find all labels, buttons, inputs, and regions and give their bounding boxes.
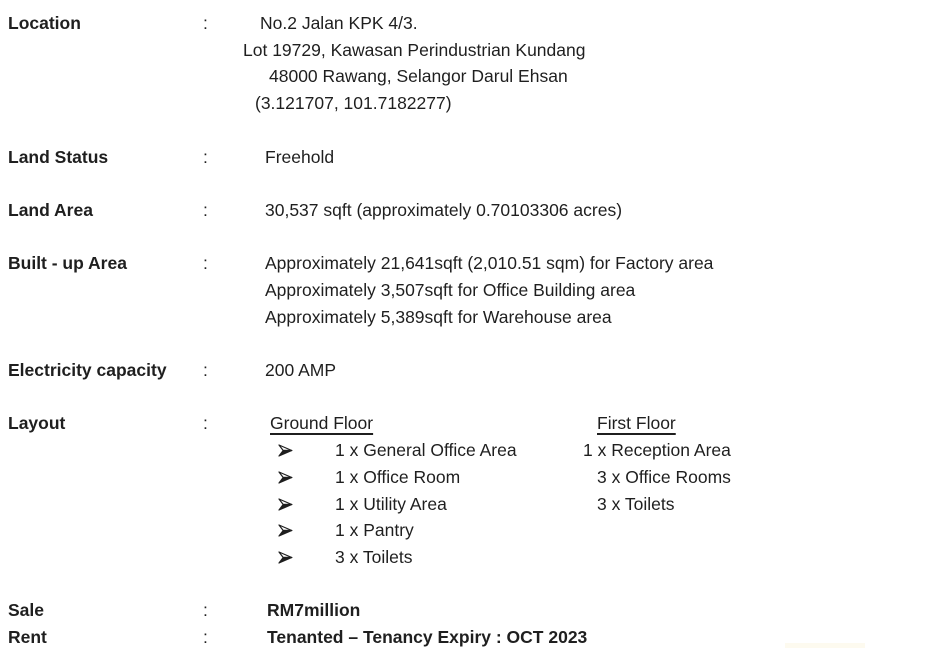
colon-separator: : (203, 624, 208, 648)
location-line: (3.121707, 101.7182277) (255, 90, 931, 117)
ground-floor-item-label: 1 x General Office Area (335, 440, 517, 460)
field-label: Rent (8, 624, 47, 648)
field-location: Location : No.2 Jalan KPK 4/3. Lot 19729… (0, 10, 931, 117)
ground-floor-item: 3 x Toilets (270, 544, 931, 571)
first-floor-column: First Floor 1 x Reception Area 3 x Offic… (583, 410, 731, 517)
field-layout: Layout : Ground Floor 1 x General Office… (0, 410, 931, 570)
location-line: No.2 Jalan KPK 4/3. (260, 10, 931, 37)
arrow-bullet-icon (278, 498, 293, 511)
location-line: Lot 19729, Kawasan Perindustrian Kundang (243, 37, 931, 64)
colon-separator: : (203, 357, 208, 384)
ground-floor-title: Ground Floor (270, 410, 373, 437)
field-electricity-capacity: Electricity capacity : 200 AMP (0, 357, 931, 384)
colon-separator: : (203, 597, 208, 624)
colon-separator: : (203, 197, 208, 224)
scan-artifact (785, 643, 865, 648)
field-label: Sale (8, 597, 44, 624)
arrow-bullet-icon (278, 524, 293, 537)
field-land-area: Land Area : 30,537 sqft (approximately 0… (0, 197, 931, 224)
built-up-lines: Approximately 21,641sqft (2,010.51 sqm) … (0, 250, 931, 330)
built-up-line: Approximately 21,641sqft (2,010.51 sqm) … (265, 250, 931, 277)
built-up-line: Approximately 3,507sqft for Office Build… (265, 277, 931, 304)
field-label: Built - up Area (8, 250, 127, 277)
field-value: RM7million (267, 597, 931, 624)
field-label: Electricity capacity (8, 357, 167, 384)
field-value: 30,537 sqft (approximately 0.70103306 ac… (265, 197, 931, 224)
ground-floor-item-label: 3 x Toilets (335, 547, 413, 567)
field-label: Land Status (8, 144, 108, 171)
ground-floor-item-label: 1 x Office Room (335, 467, 460, 487)
colon-separator: : (203, 250, 208, 277)
property-detail-document: Location : No.2 Jalan KPK 4/3. Lot 19729… (0, 0, 931, 648)
colon-separator: : (203, 410, 208, 437)
first-floor-item: 3 x Toilets (597, 491, 731, 518)
field-value: 200 AMP (265, 357, 931, 384)
arrow-bullet-icon (278, 444, 293, 457)
first-floor-item: 3 x Office Rooms (597, 464, 731, 491)
ground-floor-item-label: 1 x Utility Area (335, 494, 447, 514)
first-floor-title: First Floor (597, 410, 676, 437)
first-floor-item: 1 x Reception Area (583, 437, 731, 464)
ground-floor-item-label: 1 x Pantry (335, 520, 414, 540)
built-up-line: Approximately 5,389sqft for Warehouse ar… (265, 304, 931, 331)
colon-separator: : (203, 144, 208, 171)
location-lines: No.2 Jalan KPK 4/3. Lot 19729, Kawasan P… (0, 10, 931, 117)
field-label: Land Area (8, 197, 93, 224)
field-label: Location (8, 10, 81, 37)
ground-floor-item: 1 x Pantry (270, 517, 931, 544)
field-sale: Sale : RM7million (0, 597, 931, 624)
colon-separator: : (203, 10, 208, 37)
field-land-status: Land Status : Freehold (0, 144, 931, 171)
location-line: 48000 Rawang, Selangor Darul Ehsan (269, 63, 931, 90)
field-built-up-area: Built - up Area : Approximately 21,641sq… (0, 250, 931, 330)
arrow-bullet-icon (278, 551, 293, 564)
field-value: Freehold (265, 144, 931, 171)
field-label: Layout (8, 410, 65, 437)
arrow-bullet-icon (278, 471, 293, 484)
